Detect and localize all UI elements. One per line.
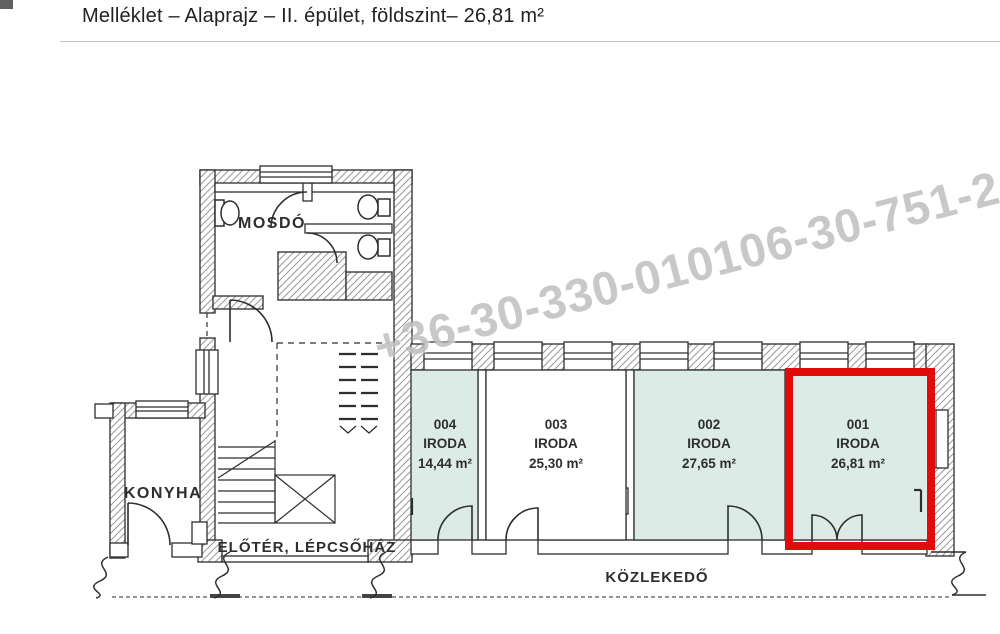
label-corridor: KÖZLEKEDŐ <box>605 568 708 586</box>
svg-text:001: 001 <box>847 417 870 432</box>
toilet-icon-1 <box>358 195 390 219</box>
svg-text:IRODA: IRODA <box>534 436 578 451</box>
office-rooms <box>411 370 928 540</box>
svg-text:IRODA: IRODA <box>836 436 880 451</box>
label-foyer: ELŐTÉR, LÉPCSŐHÁZ <box>218 538 397 556</box>
sink-icon <box>215 200 239 226</box>
svg-text:25,30 m²: 25,30 m² <box>529 456 584 471</box>
break-symbol-left <box>94 557 108 598</box>
staircase <box>207 313 390 523</box>
svg-text:26,81 m²: 26,81 m² <box>831 456 886 471</box>
svg-text:27,65 m²: 27,65 m² <box>682 456 737 471</box>
label-washroom: MOSDÓ <box>238 213 306 232</box>
floor-plan: MOSDÓ KONYHA ELŐTÉR, LÉPCSŐHÁZ KÖZLEKEDŐ… <box>0 0 1000 634</box>
svg-text:IRODA: IRODA <box>687 436 731 451</box>
window-kitchen <box>136 401 188 418</box>
room-003 <box>486 370 626 540</box>
svg-text:14,44 m²: 14,44 m² <box>418 456 473 471</box>
svg-text:003: 003 <box>545 417 568 432</box>
window-top-washroom <box>260 166 332 183</box>
room-004 <box>411 370 478 540</box>
windows-office-row <box>424 342 914 371</box>
toilet-icon-2 <box>358 235 390 259</box>
label-kitchen: KONYHA <box>124 485 202 502</box>
window-stair-left <box>196 350 218 394</box>
svg-text:002: 002 <box>698 417 721 432</box>
svg-text:IRODA: IRODA <box>423 436 467 451</box>
room-002 <box>634 370 785 540</box>
break-symbol-right <box>952 552 966 595</box>
svg-text:004: 004 <box>434 417 457 432</box>
door-kitchen <box>128 503 170 545</box>
